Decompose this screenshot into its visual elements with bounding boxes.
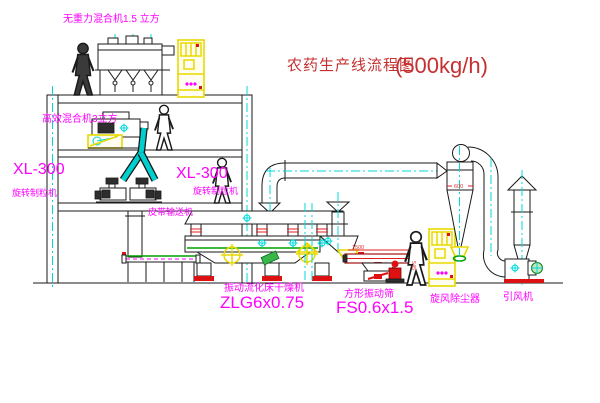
- label-granulator-left-name: 旋转制粒机: [12, 187, 57, 198]
- person-ground: [405, 232, 427, 285]
- label-high-efficiency-mixer: 高效混合机3立方: [42, 112, 118, 125]
- label-screen-model: FS0.6x1.5: [336, 298, 414, 317]
- gravity-free-mixer: [95, 34, 174, 95]
- label-dryer-model: ZLG6x0.75: [220, 293, 304, 312]
- person-roof: [73, 43, 94, 95]
- label-fan: 引风机: [503, 290, 533, 303]
- belt-conveyor: [122, 252, 200, 282]
- label-granulator-left-model: XL-300: [13, 161, 65, 178]
- label-cyclone: 旋风除尘器: [430, 292, 480, 305]
- label-granulator-center-model: XL-300: [176, 165, 228, 182]
- dryer-exhaust-duct: [259, 160, 452, 216]
- drawing-canvas: 无重力混合机1.5 立方 农药生产线流程图 (500kg/h) 高效混合机3立方…: [0, 0, 600, 403]
- vibrating-screen: [343, 250, 415, 281]
- label-granulator-center-name: 旋转制粒机: [193, 185, 238, 196]
- granulator-center: [128, 178, 162, 202]
- bucket-elevator-top: [178, 40, 204, 97]
- label-gravity-mixer: 无重力混合机1.5 立方: [63, 12, 160, 25]
- dim-screen-length: 1500: [352, 245, 364, 251]
- dim-screen-height: 545: [410, 261, 416, 270]
- cyclone-to-fan-duct: [468, 147, 506, 277]
- discharge-chute: [125, 211, 145, 257]
- bucket-elevator-right: [429, 229, 455, 286]
- dim-cyclone-diameter: 600: [454, 184, 463, 190]
- cad-flow-diagram: 无重力混合机1.5 立方 农药生产线流程图 (500kg/h) 高效混合机3立方…: [0, 0, 600, 403]
- page-title-capacity: (500kg/h): [395, 53, 488, 78]
- label-belt-conveyor: 皮带输送机: [148, 206, 193, 217]
- induced-draft-fan: [504, 259, 544, 283]
- granulator-left: [95, 178, 128, 202]
- person-floor1: [155, 105, 173, 150]
